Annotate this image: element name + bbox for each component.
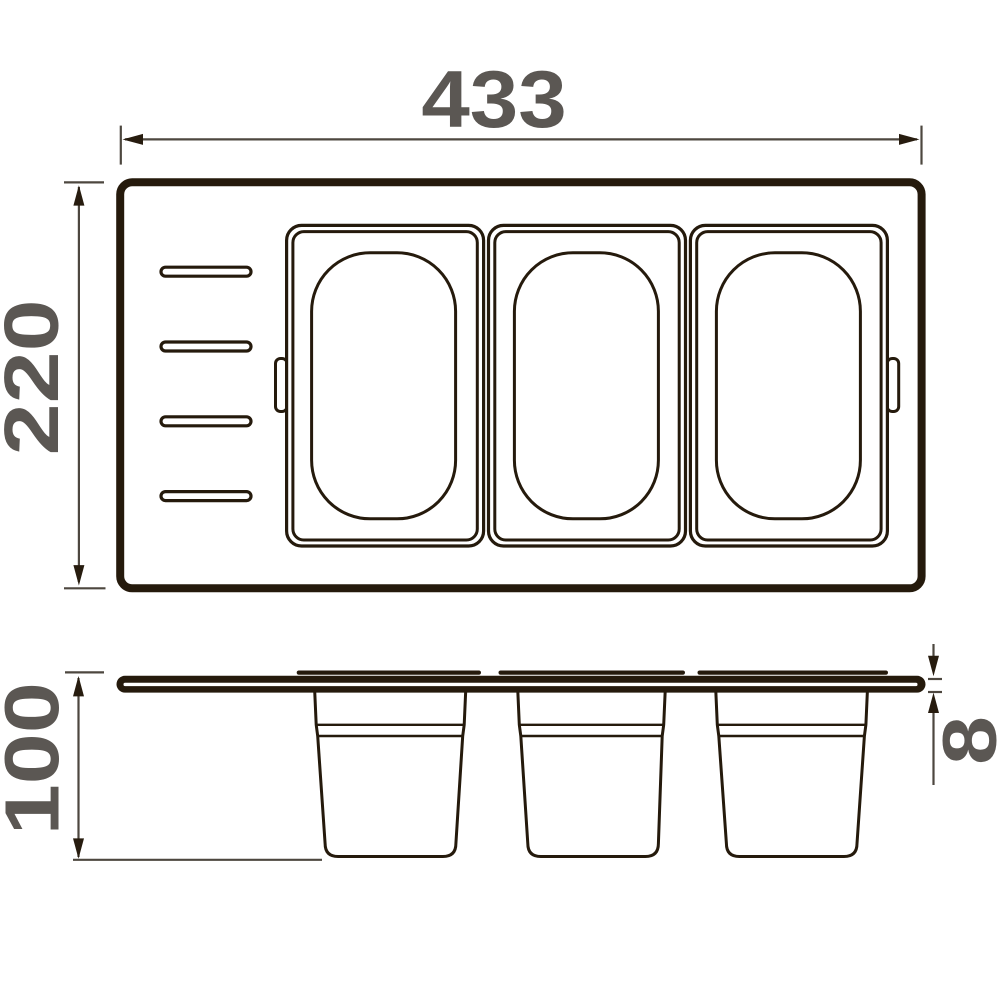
- svg-text:100: 100: [0, 682, 75, 835]
- svg-text:220: 220: [0, 299, 75, 455]
- svg-text:8: 8: [929, 716, 1000, 765]
- svg-text:433: 433: [421, 54, 566, 144]
